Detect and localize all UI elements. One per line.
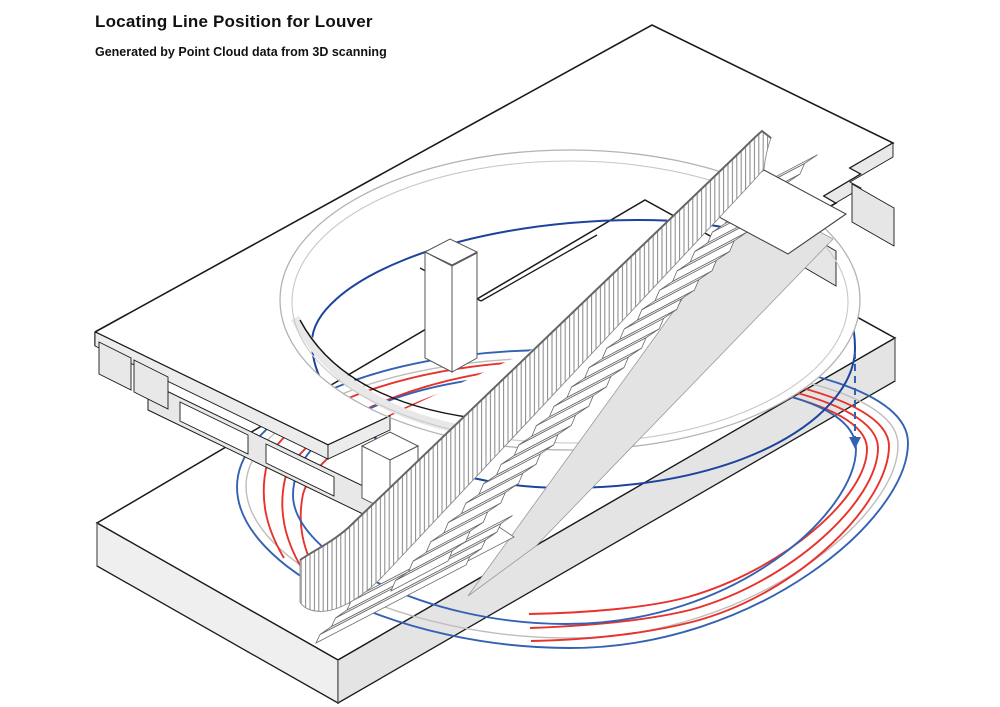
- column: [425, 239, 477, 372]
- diagram-page: Locating Line Position for Louver Genera…: [0, 0, 1000, 707]
- page-title: Locating Line Position for Louver: [95, 12, 373, 32]
- page-subtitle: Generated by Point Cloud data from 3D sc…: [95, 45, 387, 59]
- axonometric-diagram: [0, 0, 1000, 707]
